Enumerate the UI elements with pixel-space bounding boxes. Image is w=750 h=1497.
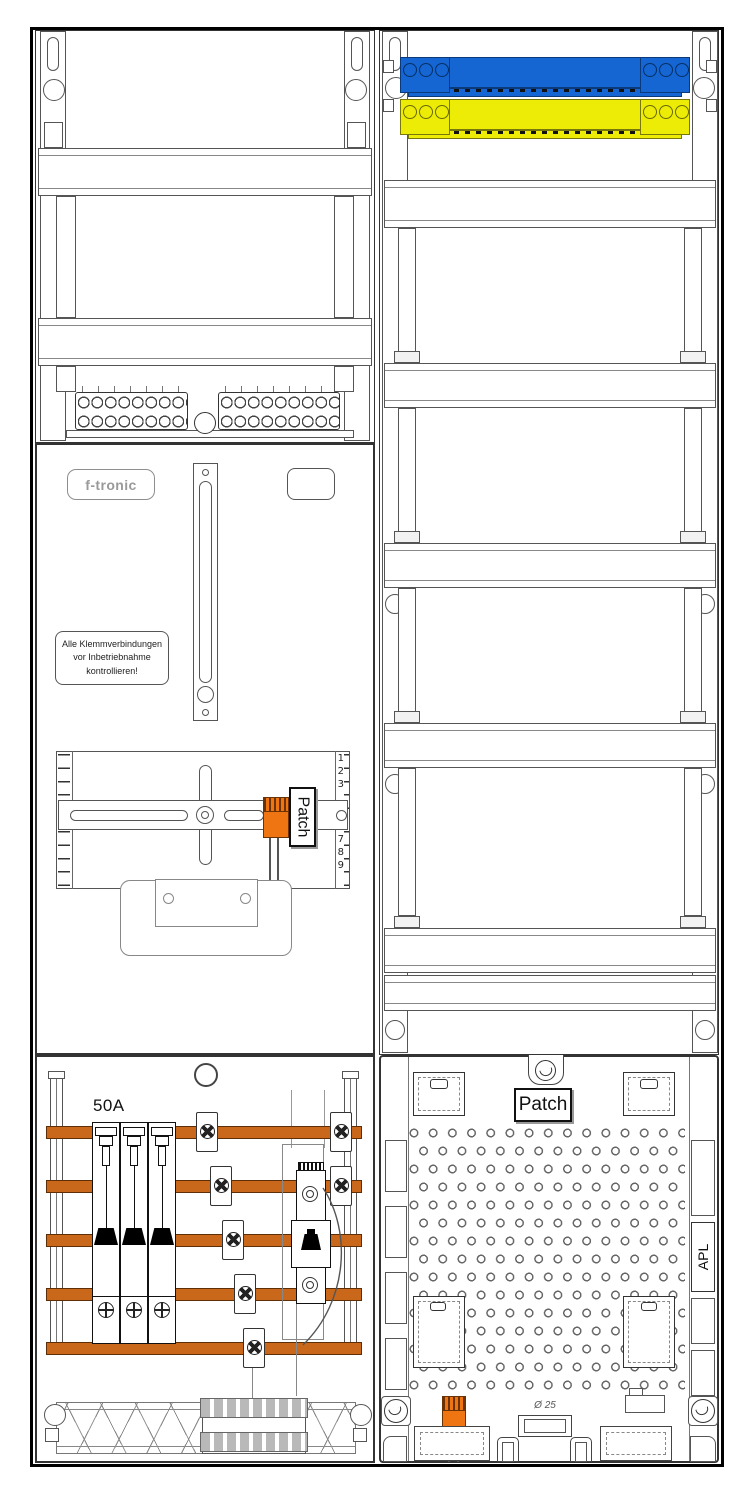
din-rail: [384, 723, 716, 768]
fuse-stem: [130, 1146, 138, 1166]
din-rail: [384, 180, 716, 228]
screw-icon: [334, 1124, 349, 1139]
mount-post: [684, 768, 702, 916]
pivot-screw-center: [201, 811, 209, 819]
busbar-clamp: [222, 1220, 244, 1260]
fuse-neck: [99, 1136, 113, 1146]
cutout-tab: [430, 1302, 446, 1311]
mount-post: [56, 196, 76, 318]
apl-label: APL: [691, 1222, 715, 1292]
slide-slot: [224, 810, 264, 821]
screw-icon: [214, 1178, 229, 1193]
mount-post: [56, 366, 76, 392]
ruler-number: 3: [334, 778, 344, 791]
din-rail: [384, 543, 716, 588]
post-cap: [680, 351, 706, 363]
terminal-row: [200, 1432, 308, 1452]
rail-hole: [43, 79, 65, 101]
breaker-module-divider: [119, 1122, 121, 1344]
mount-hole: [44, 1404, 66, 1426]
ruler-number: 1: [334, 752, 344, 765]
plate-hole: [240, 893, 251, 904]
terminal-row: [200, 1398, 308, 1418]
edge-segment: [385, 1272, 407, 1324]
warning-label: Alle Klemmverbindungen vor Inbetriebnahm…: [55, 631, 169, 685]
fuse-stem: [158, 1146, 166, 1166]
breaker-base-line: [92, 1296, 176, 1297]
device-top-cap: [298, 1162, 324, 1171]
rail-hole: [385, 1020, 405, 1040]
end-hole: [336, 810, 347, 821]
busbar-clip: [383, 60, 394, 73]
rail-slot: [47, 37, 59, 71]
busbar-terminal-hole: [419, 63, 433, 77]
ruler-number: 7: [334, 833, 344, 846]
edge-segment: [385, 1338, 407, 1390]
cover-screw: [194, 1063, 218, 1087]
mount-part: [625, 1395, 665, 1413]
ruler-ticks: [344, 831, 349, 888]
din-rail: [384, 928, 716, 973]
terminal-slots: [454, 131, 638, 134]
din-rail: [384, 363, 716, 408]
screw-icon: [226, 1232, 241, 1247]
breaker-module-divider: [147, 1122, 149, 1344]
slide-slot: [70, 810, 188, 821]
cutout-tab: [430, 1079, 448, 1089]
corner-screw-icon: [384, 1399, 408, 1423]
busbar-terminal-hole: [659, 105, 673, 119]
patch-module: [263, 797, 289, 838]
cover-plate: [287, 468, 335, 500]
busbar-clamp: [234, 1274, 256, 1314]
fuse-head: [151, 1127, 173, 1136]
busbar-terminal-hole: [643, 63, 657, 77]
rail-block: [44, 122, 63, 148]
rail-hole: [695, 1020, 715, 1040]
busbar-terminal-hole: [675, 105, 689, 119]
rail-slot: [351, 37, 363, 71]
post-cap: [394, 351, 420, 363]
mount-post: [398, 768, 416, 916]
busbar-terminal-hole: [435, 63, 449, 77]
brand-logo-text: f-tronic: [85, 477, 136, 493]
mount-clip: [353, 1428, 367, 1442]
post-cap: [680, 711, 706, 723]
edge-segment: [385, 1140, 407, 1192]
mount-clip: [45, 1428, 59, 1442]
pole-conductor: [162, 1166, 163, 1228]
terminal-screw-icon: [154, 1302, 170, 1318]
rail-hole: [345, 79, 367, 101]
mount-post: [334, 366, 354, 392]
device-wire: [295, 1185, 355, 1350]
mount-post: [334, 196, 354, 318]
post-cap: [394, 531, 420, 543]
mount-hole: [350, 1404, 372, 1426]
breaker-rating-label: 50A: [93, 1096, 124, 1116]
post-cap: [394, 916, 420, 928]
corner-entry: [690, 1436, 716, 1462]
busbar-terminal-hole: [403, 63, 417, 77]
slide-hole: [202, 709, 209, 716]
cable-entry-small-inner: [502, 1442, 514, 1462]
din-rail: [38, 318, 372, 366]
busbar-terminal-hole: [435, 105, 449, 119]
edge-segment: [691, 1298, 715, 1344]
fuse-neck: [127, 1136, 141, 1146]
busbar-clamp: [243, 1328, 265, 1368]
rail-hole: [693, 77, 715, 99]
busbar-clip: [706, 99, 717, 112]
meter-cabinet-drawing: f-tronic Alle Klemmverbindungen vor Inbe…: [0, 0, 750, 1497]
pole-conductor: [134, 1166, 135, 1228]
busbar-terminal-hole: [643, 105, 657, 119]
slide-slot: [199, 481, 212, 683]
mount-post: [398, 408, 416, 543]
patch-label-text: Patch: [519, 1094, 568, 1116]
screw-icon: [247, 1340, 262, 1355]
terminal-slots: [454, 89, 638, 92]
cable-entry-inner: [606, 1432, 666, 1455]
din-rail: [384, 975, 716, 1011]
edge-segment: [691, 1140, 715, 1216]
plate-hole: [163, 893, 174, 904]
patch-label-text: Patch: [294, 797, 312, 838]
busbar-terminal-hole: [419, 105, 433, 119]
post-cap: [394, 711, 420, 723]
terminal-block: [75, 392, 188, 430]
busbar-holder-rail: [50, 1078, 63, 1348]
screw-icon: [200, 1124, 215, 1139]
device-guide-lines: [291, 1090, 325, 1148]
slide-hole: [202, 469, 209, 476]
busbar-clip: [706, 60, 717, 73]
cutout-tab: [640, 1079, 658, 1089]
apl-label-text: APL: [695, 1244, 711, 1270]
ruler-number: 9: [334, 859, 344, 872]
cable-entry-inner: [420, 1432, 484, 1455]
cutout-tab: [641, 1302, 657, 1311]
mount-post: [684, 408, 702, 543]
terminal-screw-icon: [126, 1302, 142, 1318]
busbar-clamp: [196, 1112, 218, 1152]
fuse-head: [123, 1127, 145, 1136]
warning-label-text: Alle Klemmverbindungen vor Inbetriebnahm…: [62, 638, 162, 677]
left-top-section: [35, 30, 375, 443]
slide-hole: [197, 686, 214, 703]
mount-post: [398, 228, 416, 363]
post-cap: [680, 916, 706, 928]
terminal-screw-icon: [98, 1302, 114, 1318]
ruler-number: 8: [334, 846, 344, 859]
pole-conductor: [106, 1166, 107, 1228]
brand-logo: f-tronic: [67, 469, 155, 500]
fuse-head: [95, 1127, 117, 1136]
knockout-diameter-label: Ø 25: [512, 1400, 578, 1411]
mount-post: [398, 588, 416, 723]
ruler-number: 2: [334, 765, 344, 778]
patch-label: Patch: [514, 1088, 572, 1122]
patch-label: Patch: [289, 787, 316, 847]
busbar-terminal-hole: [659, 63, 673, 77]
edge-segment: [691, 1350, 715, 1396]
busbar-terminal-hole: [403, 105, 417, 119]
corner-screw-icon: [691, 1399, 715, 1423]
rail-block: [347, 122, 366, 148]
busbar-clip: [383, 99, 394, 112]
fuse-stem: [102, 1146, 110, 1166]
cover-screw-icon: [535, 1060, 556, 1081]
fuse-neck: [155, 1136, 169, 1146]
screw-icon: [238, 1286, 253, 1301]
ruler-ticks: [58, 831, 70, 888]
mount-post: [684, 228, 702, 363]
busbar-terminal-hole: [675, 63, 689, 77]
cable-entry-small-inner: [575, 1442, 587, 1462]
wire: [269, 838, 271, 882]
busbar-clamp: [210, 1166, 232, 1206]
mount-post: [684, 588, 702, 723]
terminal-block: [218, 392, 340, 430]
wire: [277, 838, 279, 882]
screw-hole: [194, 412, 216, 434]
post-cap: [680, 531, 706, 543]
busbar-clamp: [330, 1112, 352, 1152]
edge-segment: [385, 1206, 407, 1258]
corner-entry: [383, 1436, 407, 1462]
cable-knockout-inner: [524, 1419, 566, 1433]
din-rail: [38, 148, 372, 196]
